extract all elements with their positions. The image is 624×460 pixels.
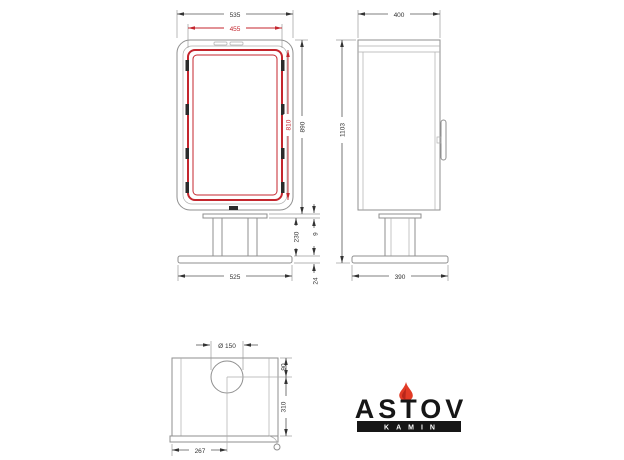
dim-plate-thickness: 9 <box>312 232 319 236</box>
door-handle-side <box>441 120 446 160</box>
dim-body-height: 890 <box>299 121 306 132</box>
pedestal-column-left <box>213 218 222 256</box>
top-vent-slot <box>230 42 243 45</box>
door-frame-inner <box>193 55 277 195</box>
base-plate-side <box>352 256 448 263</box>
dim-pedestal-height: 230 <box>293 231 300 242</box>
technical-drawing-page: 535 455 890 810 9 230 <box>0 0 624 460</box>
dim-flue-diameter: Ø 150 <box>218 343 236 350</box>
dim-base-thickness: 24 <box>312 277 319 285</box>
door-latch <box>229 206 238 210</box>
handle-top-link <box>269 436 277 444</box>
brand-logo: ASTOV KAMIN <box>355 382 468 432</box>
dim-front-overall-width: 535 <box>230 12 241 19</box>
pedestal-column-right <box>248 218 257 256</box>
dim-total-height: 1103 <box>339 123 346 137</box>
top-base-edge <box>170 436 278 442</box>
brand-name: ASTOV <box>355 394 468 424</box>
front-body-outline <box>177 40 293 210</box>
handle-top-knob <box>274 444 280 450</box>
side-body-outline <box>358 40 440 210</box>
top-view: Ø 150 90 310 267 <box>170 341 292 456</box>
dim-door-width: 455 <box>230 26 241 33</box>
dim-flue-to-back: 90 <box>280 363 287 371</box>
stove-dimension-drawing: 535 455 890 810 9 230 <box>0 0 624 460</box>
dim-depth-overall: 400 <box>394 12 405 19</box>
pedestal-top-plate-side <box>379 214 421 218</box>
front-body-inner-line <box>183 46 287 204</box>
pedestal-top-plate <box>203 214 267 218</box>
door-hinges <box>186 60 285 210</box>
door-frame-outer <box>188 50 282 200</box>
front-view: 535 455 890 810 9 230 <box>177 10 320 285</box>
pedestal-column-side <box>385 218 415 256</box>
brand-subtitle: KAMIN <box>384 425 442 432</box>
side-view: 400 1103 390 <box>336 10 448 281</box>
top-vent-slot <box>214 42 227 45</box>
base-plate-front <box>178 256 292 263</box>
dim-base-width: 525 <box>230 274 241 281</box>
dim-flue-center-offset: 267 <box>195 448 206 455</box>
dim-base-depth: 390 <box>395 274 406 281</box>
dim-door-height: 810 <box>285 119 292 130</box>
dim-flue-to-front: 310 <box>280 401 287 412</box>
top-body-outline <box>172 358 278 436</box>
